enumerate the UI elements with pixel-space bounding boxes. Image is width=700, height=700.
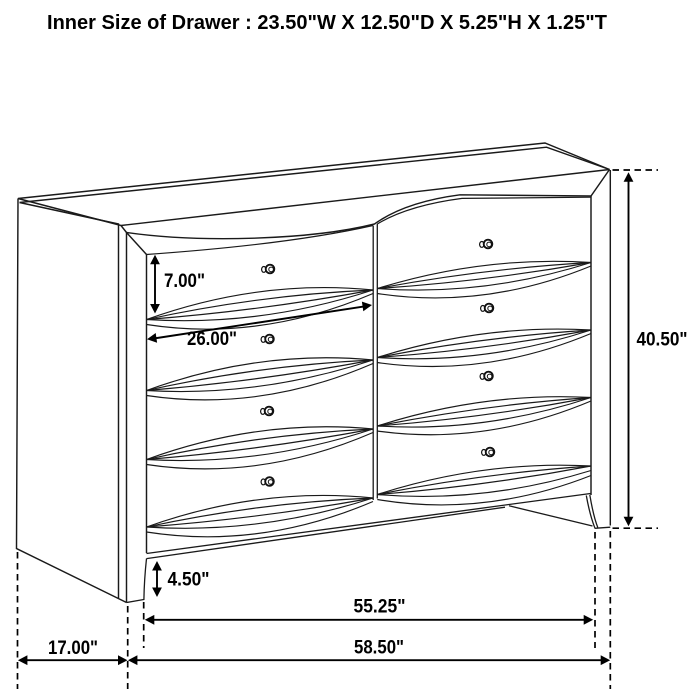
svg-text:40.50": 40.50"	[637, 329, 688, 351]
svg-text:55.25": 55.25"	[354, 596, 406, 618]
svg-text:26.00": 26.00"	[187, 328, 237, 350]
svg-text:58.50": 58.50"	[354, 637, 404, 659]
svg-text:17.00": 17.00"	[48, 637, 98, 659]
svg-text:7.00": 7.00"	[164, 270, 205, 292]
svg-text:4.50": 4.50"	[168, 569, 210, 591]
svg-text:Inner Size of Drawer : 23.50"W: Inner Size of Drawer : 23.50"W X 12.50"D…	[47, 12, 607, 34]
